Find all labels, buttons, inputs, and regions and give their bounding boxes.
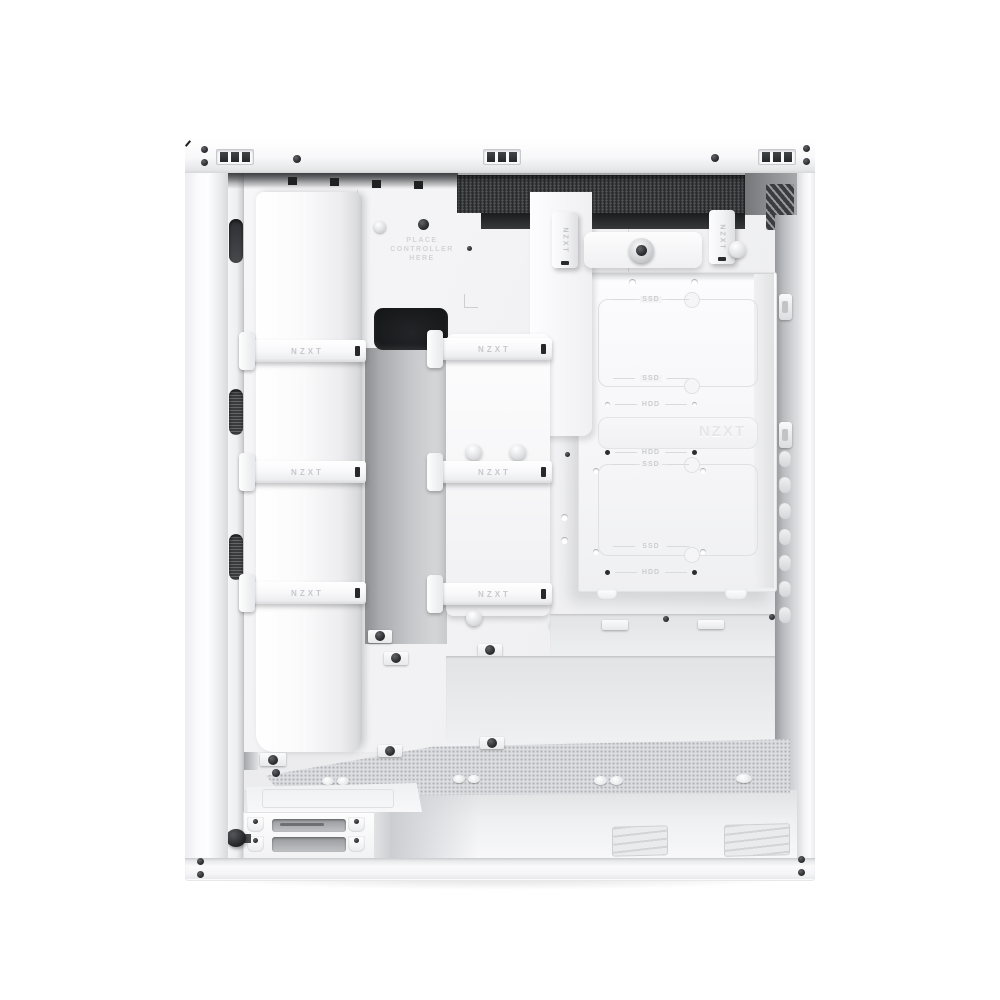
drive-slot-label-row: HDD: [586, 400, 716, 409]
frame-screw: [201, 146, 208, 153]
thumbscrew-center: [636, 245, 647, 256]
top-vent-cutout: [758, 149, 796, 165]
engrave-line: [613, 464, 635, 465]
cage-pin-hole: [593, 549, 599, 555]
cage-pin-hole: [691, 279, 698, 286]
expansion-slot-cutout: [272, 837, 346, 852]
tab-screw-hole: [253, 819, 258, 824]
controller-area-text: PLACE CONTROLLER HERE: [378, 236, 466, 266]
screw: [385, 746, 395, 756]
product-photo-canvas: PLACE CONTROLLER HERE SSD SSD HDD: [0, 0, 1000, 1000]
psu-thumbscrew-knob: [226, 829, 246, 847]
screw: [418, 219, 429, 230]
standoff: [466, 610, 482, 626]
slot-inner-line: [280, 823, 324, 826]
pin-hole: [561, 514, 568, 521]
rubber-pad: [337, 777, 349, 785]
standoff: [510, 444, 526, 460]
tab-screw-hole: [354, 838, 359, 843]
drive-slot-label-row: SSD: [586, 295, 716, 304]
velcro-strap: NZXT: [246, 461, 366, 483]
top-vent-cutout: [483, 149, 521, 165]
vent-slot: [773, 152, 781, 162]
rear-vent-slot: [779, 476, 791, 493]
screw: [487, 738, 497, 748]
cage-pin-hole: [700, 468, 706, 474]
cage-foot: [597, 589, 617, 600]
engrave-line: [615, 404, 637, 405]
top-vent-cutout: [216, 149, 254, 165]
rubber-pad: [453, 775, 465, 783]
front-vent-oval-mesh: [229, 389, 243, 435]
vent-slot: [487, 152, 495, 162]
screw: [272, 769, 280, 777]
drive-slot-label: SSD: [640, 461, 661, 468]
drive-slot-label-row: HDD: [586, 448, 716, 457]
vent-slot: [784, 152, 792, 162]
strap-label: NZXT: [475, 468, 511, 477]
velcro-strap-vertical: NZXT: [552, 212, 578, 268]
rear-channel-hook: [779, 422, 792, 448]
engrave-line: [613, 546, 635, 547]
rear-vent-slot: [779, 450, 791, 467]
shroud-clip: [698, 620, 724, 629]
rear-vent-slot: [779, 606, 791, 623]
engrave-line: [613, 378, 635, 379]
front-vent-oval-mesh: [229, 534, 243, 580]
screw: [391, 653, 401, 663]
engrave-line: [665, 452, 687, 453]
strap-end-slot: [541, 467, 546, 477]
rubber-pad: [736, 774, 752, 783]
rubber-pad: [468, 775, 480, 783]
screw-hole: [663, 616, 669, 622]
velcro-strap: NZXT: [246, 340, 366, 362]
drive-slot-label: SSD: [640, 296, 661, 303]
frame-screw: [803, 158, 810, 165]
engrave-line: [665, 572, 687, 573]
cage-nzxt-logo: NZXT: [660, 423, 746, 441]
strap-label: NZXT: [562, 227, 569, 253]
screw-hole: [605, 570, 610, 575]
mount-peg: [729, 241, 746, 258]
drive-cage-top-shade: [579, 273, 774, 281]
drive-slot-label-row: SSD: [586, 374, 716, 383]
standoff: [466, 444, 482, 460]
drive-slot-label: SSD: [640, 375, 661, 382]
top-vent-channel: [457, 175, 745, 213]
rear-vent-slot: [779, 554, 791, 571]
frame-screw: [197, 871, 204, 878]
strap-hook: [239, 332, 255, 370]
engrave-line: [665, 404, 687, 405]
drive-slot-label-row: SSD: [586, 460, 716, 469]
controller-line-3: HERE: [378, 254, 466, 263]
frame-screw: [803, 145, 810, 152]
front-vent-oval: [229, 219, 243, 263]
pin-hole: [605, 402, 610, 407]
strap-label: NZXT: [475, 345, 511, 354]
velcro-strap: NZXT: [434, 338, 552, 360]
screw: [375, 631, 385, 641]
screw-hole: [605, 450, 610, 455]
engrave-line: [615, 452, 637, 453]
strap-label: NZXT: [719, 224, 726, 250]
vent-slot: [509, 152, 517, 162]
left-frame: [185, 173, 228, 858]
strap-hook: [239, 574, 255, 612]
rubber-pad: [322, 777, 334, 785]
strap-hook: [239, 453, 255, 491]
velcro-strap: NZXT: [434, 461, 552, 483]
strap-end-slot: [355, 467, 360, 477]
screw: [268, 755, 278, 765]
drive-slot-label: HDD: [642, 569, 660, 576]
velcro-strap: NZXT: [434, 583, 552, 605]
controller-line-2: CONTROLLER: [378, 245, 466, 254]
frame-screw: [201, 159, 208, 166]
strap-end-slot: [355, 346, 360, 356]
screw: [485, 645, 495, 655]
bottom-sill: [185, 858, 815, 879]
psu-rail: [612, 825, 668, 856]
vent-slot: [231, 152, 239, 162]
vent-slot: [242, 152, 250, 162]
drive-slot-label: SSD: [640, 543, 661, 550]
screw-hole: [692, 570, 697, 575]
shroud-clip: [602, 620, 628, 630]
engrave-line: [615, 572, 637, 573]
drive-slot-label: HDD: [642, 449, 660, 456]
frame-screw: [711, 154, 719, 162]
strap-end-slot: [541, 589, 546, 599]
engrave-line: [667, 546, 689, 547]
right-frame: [797, 173, 815, 858]
strap-label: NZXT: [475, 590, 511, 599]
strap-hook: [427, 575, 443, 613]
tab-screw-hole: [354, 819, 359, 824]
frame-screw: [798, 856, 805, 863]
vent-slot: [220, 152, 228, 162]
strap-end-slot: [355, 588, 360, 598]
cage-pin-hole: [593, 468, 599, 474]
cage-pin-hole: [700, 549, 706, 555]
pin-hole: [692, 402, 697, 407]
rubber-pad: [594, 776, 607, 785]
rear-vent-slot: [779, 502, 791, 519]
rear-vent-slot: [779, 580, 791, 597]
top-shadow-wedge: [228, 173, 458, 189]
pin-hole: [561, 537, 568, 544]
psu-rail: [724, 823, 790, 857]
psu-bracket-top-outline: [262, 789, 394, 808]
tab-screw-hole: [253, 838, 258, 843]
rear-vent-slot: [779, 528, 791, 545]
screw: [467, 246, 472, 251]
strap-label: NZXT: [288, 347, 324, 356]
strap-label: NZXT: [288, 589, 324, 598]
front-wall: [228, 173, 244, 858]
frame-screw: [197, 858, 204, 865]
cage-foot: [725, 589, 747, 600]
frame-clip: [330, 178, 339, 186]
tray-corner-mark: [464, 294, 478, 308]
vent-channel-lip: [481, 213, 745, 229]
frame-screw: [293, 155, 301, 163]
engrave-line: [613, 299, 635, 300]
screw: [374, 221, 386, 233]
strap-hook: [427, 453, 443, 491]
strap-end-slot: [541, 344, 546, 354]
psu-bracket-side: [374, 812, 390, 858]
engrave-line: [667, 299, 689, 300]
frame-clip: [414, 181, 423, 189]
engrave-line: [667, 378, 689, 379]
frame-clip: [372, 180, 381, 188]
rear-channel-hook: [779, 294, 792, 320]
engrave-line: [667, 464, 689, 465]
controller-line-1: PLACE: [378, 236, 466, 245]
rubber-pad: [610, 776, 623, 785]
drive-slot-label-row: SSD: [586, 542, 716, 551]
psu-shroud-face: [446, 656, 775, 742]
vent-slot: [762, 152, 770, 162]
drive-slot-label: HDD: [642, 401, 660, 408]
screw-hole: [565, 452, 570, 457]
drive-slot-label-row: HDD: [586, 568, 716, 577]
cage-pin-hole: [629, 279, 636, 286]
screw-hole: [769, 614, 775, 620]
velcro-strap: NZXT: [246, 582, 366, 604]
vent-slot: [498, 152, 506, 162]
strap-label: NZXT: [288, 468, 324, 477]
frame-clip: [288, 177, 297, 185]
frame-screw: [798, 869, 805, 876]
strap-hook: [427, 330, 443, 368]
screw-hole: [692, 450, 697, 455]
